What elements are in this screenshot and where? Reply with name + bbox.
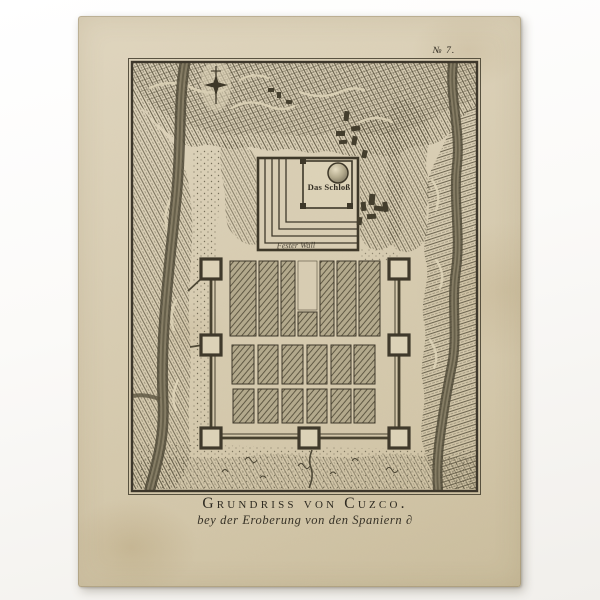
city-bastion <box>201 428 221 448</box>
photo-background: Das Schloß Fester Wall <box>0 0 600 600</box>
terrain-patch <box>360 112 404 250</box>
city-block <box>258 389 278 423</box>
city-block <box>359 261 380 336</box>
engraving-plate: Das Schloß Fester Wall <box>0 0 600 600</box>
caption-title: Grundriss von Cuzco. <box>202 495 407 512</box>
map-content: Das Schloß Fester Wall <box>133 59 476 489</box>
main-plaza <box>298 261 317 310</box>
city-block <box>282 389 303 423</box>
fortress-round-tower <box>328 163 348 183</box>
city-bastion <box>201 335 221 355</box>
city-block <box>282 345 303 384</box>
caption-subtitle: bey der Eroberung von den Spaniern ∂ <box>197 513 412 527</box>
plate-number: № 7. <box>432 46 455 56</box>
city-block <box>320 261 334 336</box>
city-block <box>331 389 351 423</box>
city-block <box>354 389 375 423</box>
north-compass-icon <box>201 59 231 111</box>
fortress-label: Das Schloß <box>308 182 351 192</box>
city-block <box>337 261 356 336</box>
fortress-wall-label: Fester Wall <box>276 241 316 251</box>
stipple-patch <box>192 150 222 450</box>
city-block <box>331 345 351 384</box>
city-bastion <box>389 259 409 279</box>
city-bastion <box>389 335 409 355</box>
city-block <box>230 261 256 336</box>
terrain-patch <box>421 105 476 489</box>
city-bastion <box>389 428 409 448</box>
city-bastion <box>201 259 221 279</box>
city-block <box>233 389 254 423</box>
fortress-plan: Das Schloß Fester Wall <box>258 158 358 250</box>
city-block <box>298 312 317 336</box>
city-block <box>259 261 278 336</box>
city-block <box>258 345 278 384</box>
city-bastion <box>299 428 319 448</box>
terrain-patch <box>220 140 257 245</box>
city-block <box>307 389 327 423</box>
city-block <box>232 345 254 384</box>
city-block <box>281 261 295 336</box>
city-block <box>354 345 375 384</box>
city-block <box>307 345 327 384</box>
stipple-patch <box>135 444 475 489</box>
